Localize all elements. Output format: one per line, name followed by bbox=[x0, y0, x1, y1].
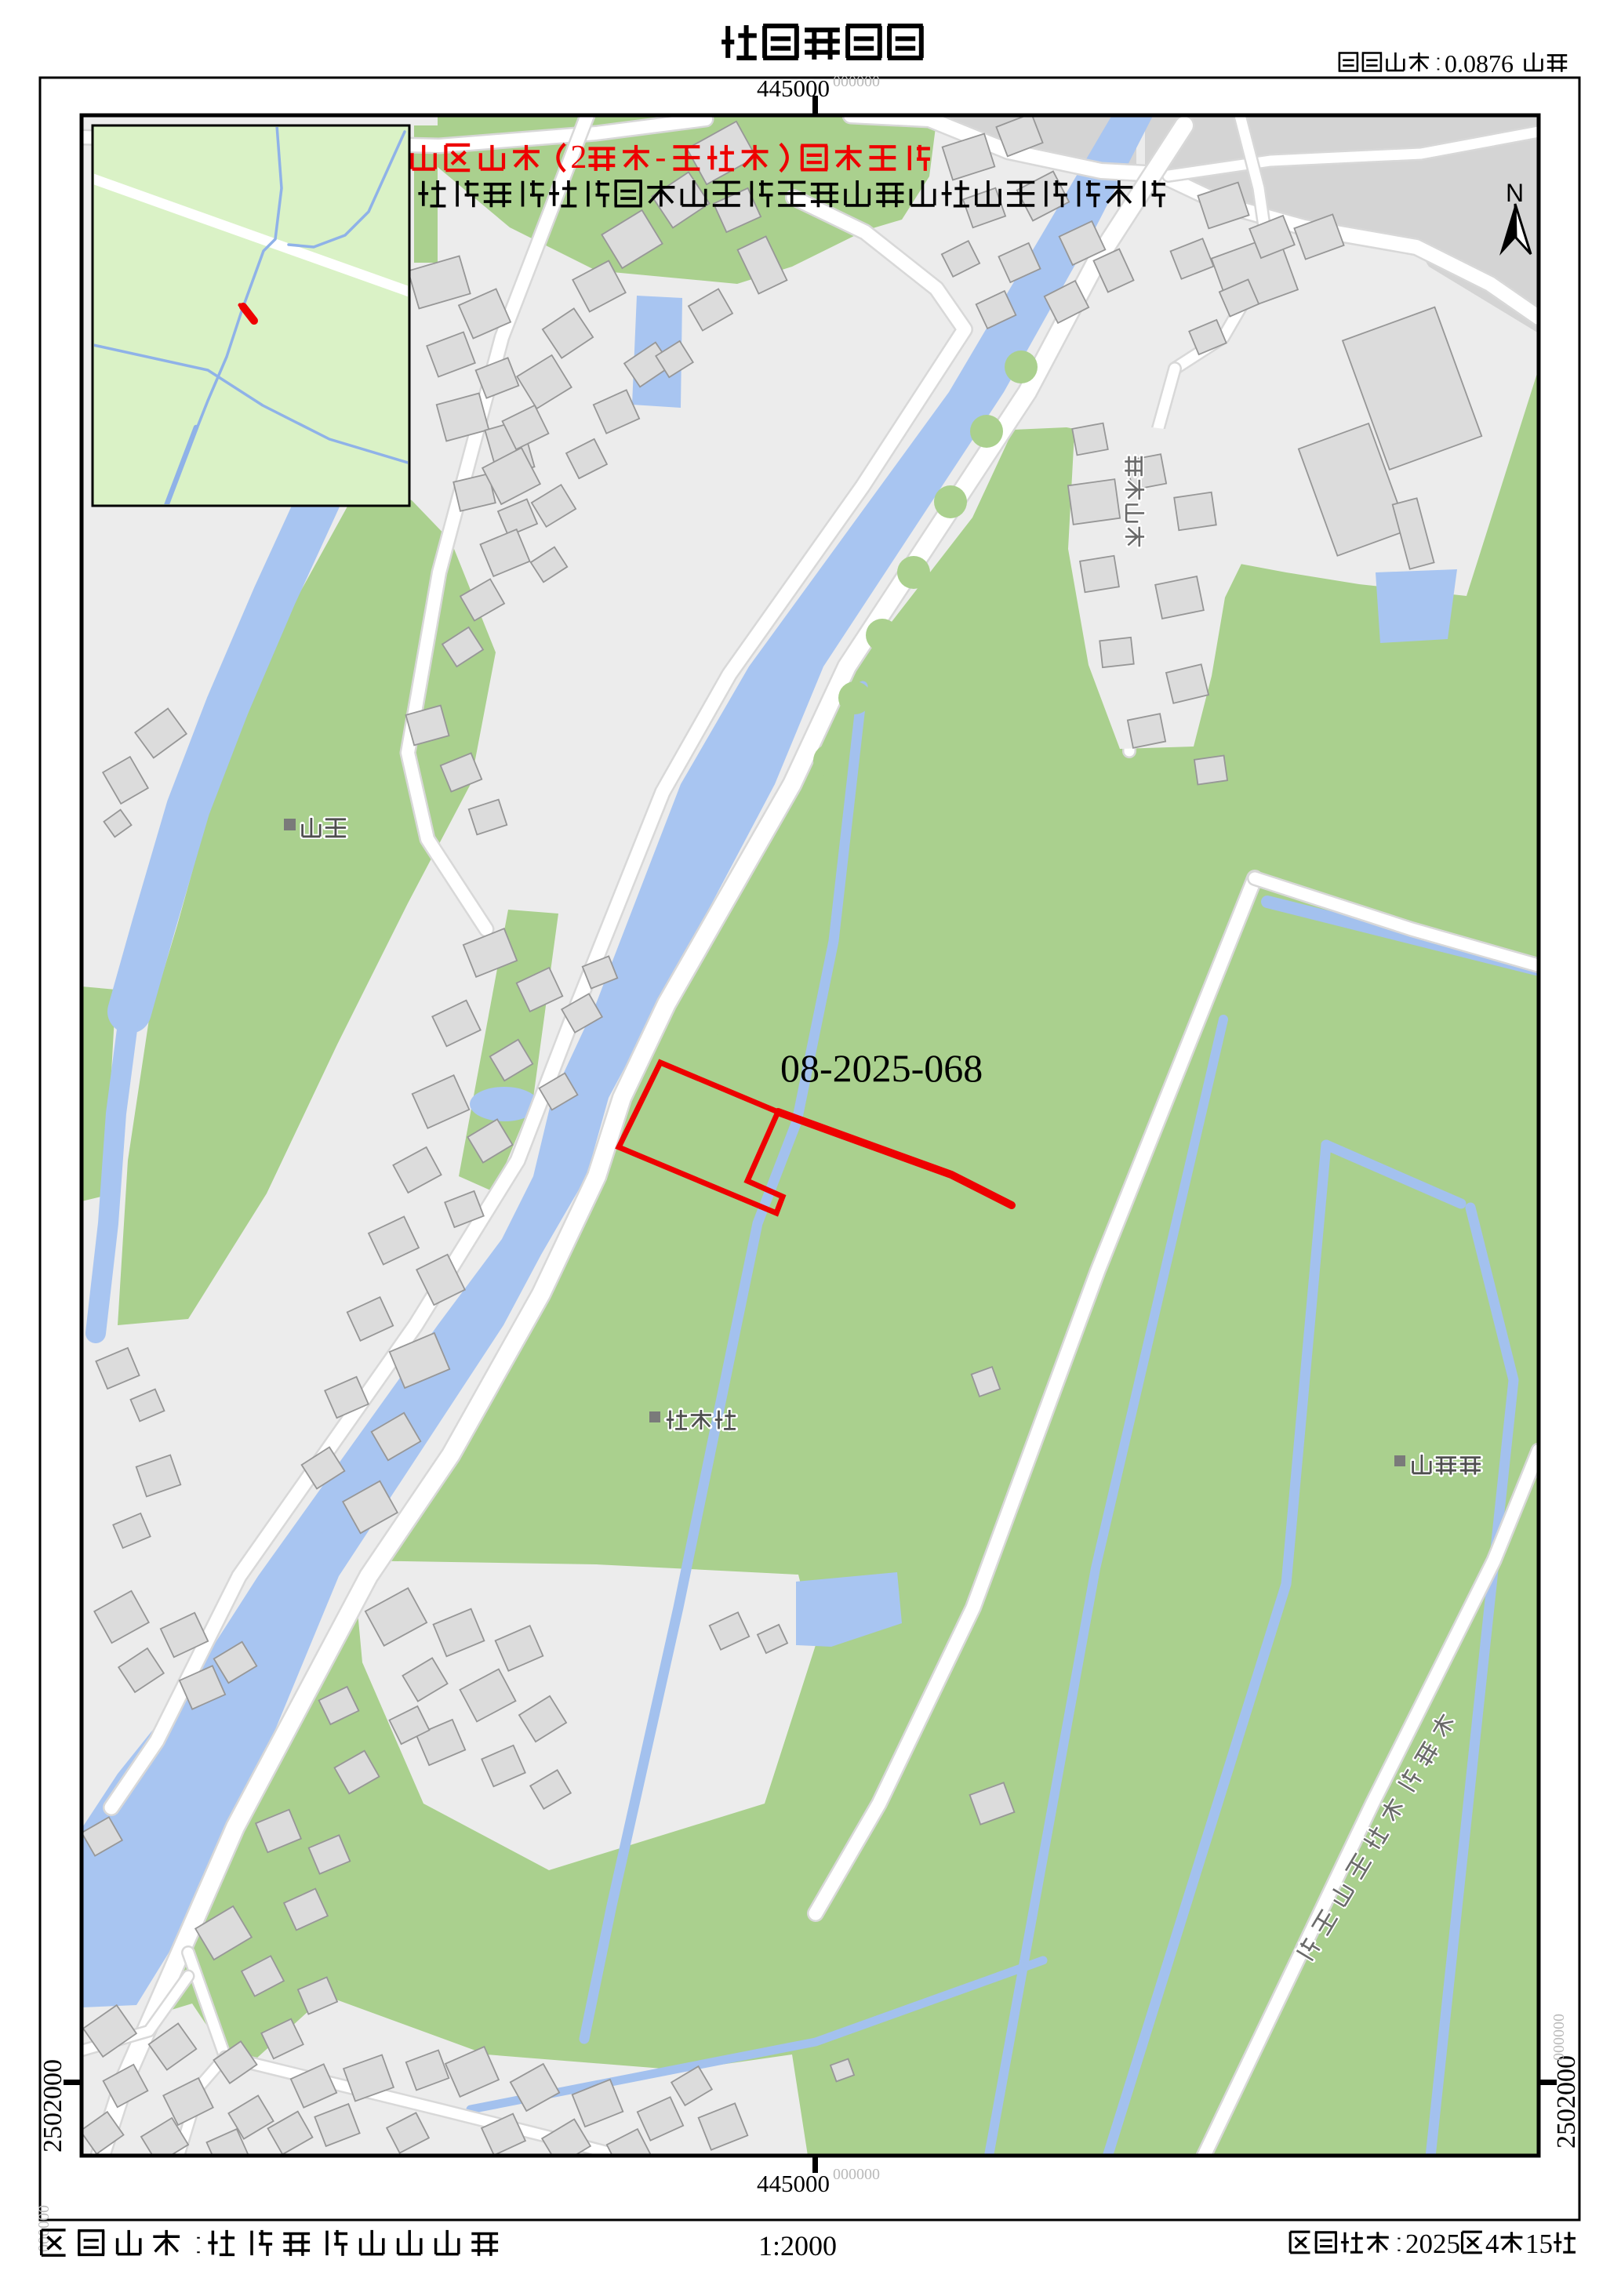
svg-text:N: N bbox=[1506, 179, 1524, 207]
svg-text:0.0876: 0.0876 bbox=[1445, 49, 1514, 78]
svg-text:-: - bbox=[655, 140, 666, 176]
svg-text:000000: 000000 bbox=[833, 73, 880, 90]
svg-text:445000: 445000 bbox=[757, 74, 830, 102]
svg-text:4: 4 bbox=[1485, 2229, 1499, 2259]
svg-text:000000: 000000 bbox=[833, 2166, 880, 2183]
svg-text:445000: 445000 bbox=[757, 2170, 830, 2197]
svg-text:15: 15 bbox=[1525, 2229, 1553, 2259]
svg-text:2025: 2025 bbox=[1405, 2229, 1460, 2259]
svg-text:000000: 000000 bbox=[35, 2205, 53, 2252]
svg-text:1:2000: 1:2000 bbox=[758, 2230, 837, 2261]
svg-text:2502000: 2502000 bbox=[38, 2059, 67, 2152]
svg-text:08-2025-068: 08-2025-068 bbox=[780, 1046, 983, 1090]
svg-text:2: 2 bbox=[570, 140, 587, 176]
svg-text:2502000: 2502000 bbox=[1552, 2055, 1581, 2149]
svg-text:000000: 000000 bbox=[1550, 2014, 1568, 2061]
